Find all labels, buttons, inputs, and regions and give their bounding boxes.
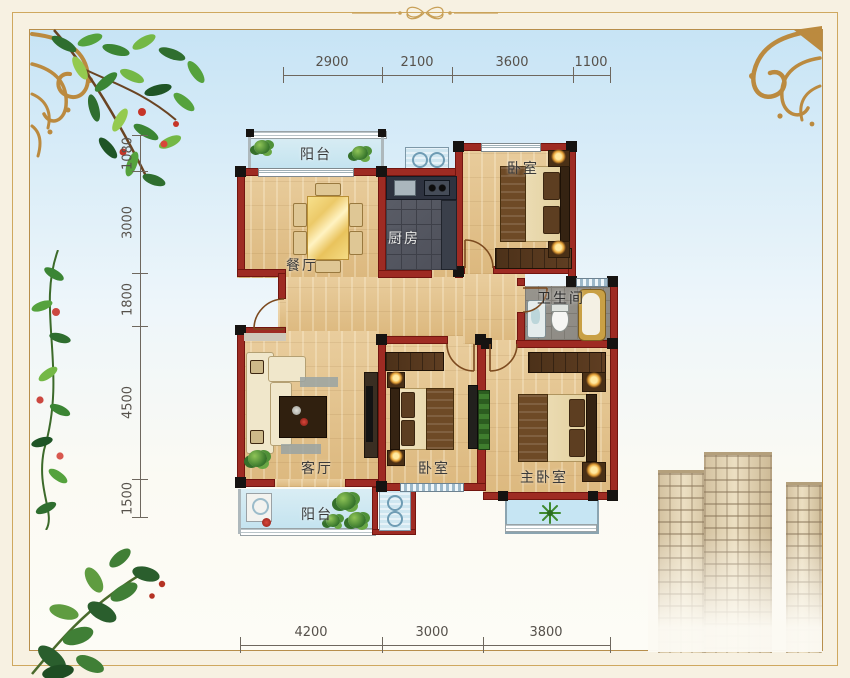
dim-label: 3600 bbox=[492, 55, 532, 70]
dimension-line-top bbox=[283, 75, 611, 76]
entry-step bbox=[244, 333, 286, 341]
balcony-rail-left bbox=[238, 489, 241, 534]
floor-plan-page: 2900 2100 3600 1100 1080 3000 1800 4500 … bbox=[0, 0, 850, 678]
entry-doorway bbox=[278, 299, 286, 327]
balcony-doorway bbox=[275, 479, 345, 487]
wardrobe bbox=[385, 352, 444, 371]
foliage-bottom-left bbox=[24, 540, 189, 678]
dining-table bbox=[307, 196, 349, 260]
foliage-left-vine bbox=[24, 250, 102, 530]
dim-label: 4200 bbox=[291, 625, 331, 640]
tv bbox=[468, 385, 478, 449]
room-label-dining: 餐厅 bbox=[278, 255, 326, 275]
plant bbox=[352, 146, 368, 160]
dim-label: 2900 bbox=[312, 55, 352, 70]
bay-window-plant bbox=[539, 502, 561, 524]
kitchen-cabinet bbox=[441, 200, 457, 270]
balcony-top-railing bbox=[248, 131, 387, 139]
bed-headboard bbox=[560, 166, 570, 242]
lamp bbox=[551, 240, 566, 255]
dim-label: 3000 bbox=[121, 203, 136, 243]
kitchen-stove bbox=[424, 180, 450, 196]
kitchen-sink bbox=[394, 180, 416, 196]
dim-label: 4500 bbox=[121, 383, 136, 423]
dim-label: 1800 bbox=[121, 280, 136, 320]
ac-unit bbox=[405, 147, 449, 170]
lamp bbox=[586, 462, 602, 478]
dim-label: 1080 bbox=[121, 134, 136, 174]
red-flower bbox=[262, 518, 271, 527]
room-label-balcony-bottom: 阳台 bbox=[293, 504, 341, 524]
bed-blanket bbox=[518, 394, 548, 462]
bathroom-sink-basin bbox=[531, 308, 540, 324]
room-label-bathroom: 卫生间 bbox=[528, 288, 594, 308]
dim-label: 1100 bbox=[571, 55, 611, 70]
coffee-table bbox=[279, 396, 327, 438]
window bbox=[258, 168, 354, 177]
ac-unit bbox=[379, 489, 411, 531]
gold-filigree-top-right-icon bbox=[700, 26, 822, 130]
bed-blanket bbox=[426, 388, 454, 450]
dim-label: 2100 bbox=[397, 55, 437, 70]
foliage-top-left bbox=[24, 24, 239, 204]
bay-window-sill bbox=[505, 524, 597, 532]
lamp bbox=[551, 149, 566, 164]
dim-label: 3800 bbox=[526, 625, 566, 640]
building-haze bbox=[648, 452, 822, 652]
corner-post bbox=[246, 129, 254, 137]
room-label-master: 主卧室 bbox=[511, 467, 577, 487]
lamp bbox=[389, 449, 403, 463]
room-label-bedroom-top: 卧室 bbox=[499, 158, 547, 178]
dim-label: 3000 bbox=[412, 625, 452, 640]
window bbox=[576, 278, 608, 287]
plant bbox=[348, 512, 366, 528]
floor-hall-bath bbox=[463, 274, 525, 344]
room-label-living: 客厅 bbox=[293, 458, 341, 478]
corner-post bbox=[378, 129, 386, 137]
room-label-bedroom-mid: 卧室 bbox=[410, 458, 458, 478]
floor-hall bbox=[286, 277, 463, 336]
dim-label: 1500 bbox=[121, 479, 136, 519]
plant-stand bbox=[478, 390, 490, 450]
room-label-balcony-top: 阳台 bbox=[292, 144, 340, 164]
wardrobe bbox=[528, 352, 606, 373]
dimension-line-bottom bbox=[240, 645, 611, 646]
building-illustration bbox=[648, 452, 822, 652]
plant bbox=[254, 140, 270, 154]
frame-ornament-icon bbox=[352, 3, 498, 23]
lamp bbox=[389, 371, 403, 385]
dimension-line-left bbox=[140, 135, 141, 517]
lamp bbox=[586, 372, 602, 388]
tv bbox=[366, 386, 373, 442]
plant bbox=[248, 450, 267, 467]
bed-headboard bbox=[390, 388, 400, 450]
room-label-kitchen: 厨房 bbox=[380, 228, 428, 248]
washing-machine-door bbox=[252, 498, 269, 515]
table-flowers bbox=[300, 418, 308, 426]
bed-headboard bbox=[586, 394, 597, 462]
balcony-bottom-railing bbox=[240, 528, 376, 536]
window bbox=[481, 143, 541, 152]
table-plate bbox=[292, 406, 301, 415]
window bbox=[400, 483, 464, 492]
